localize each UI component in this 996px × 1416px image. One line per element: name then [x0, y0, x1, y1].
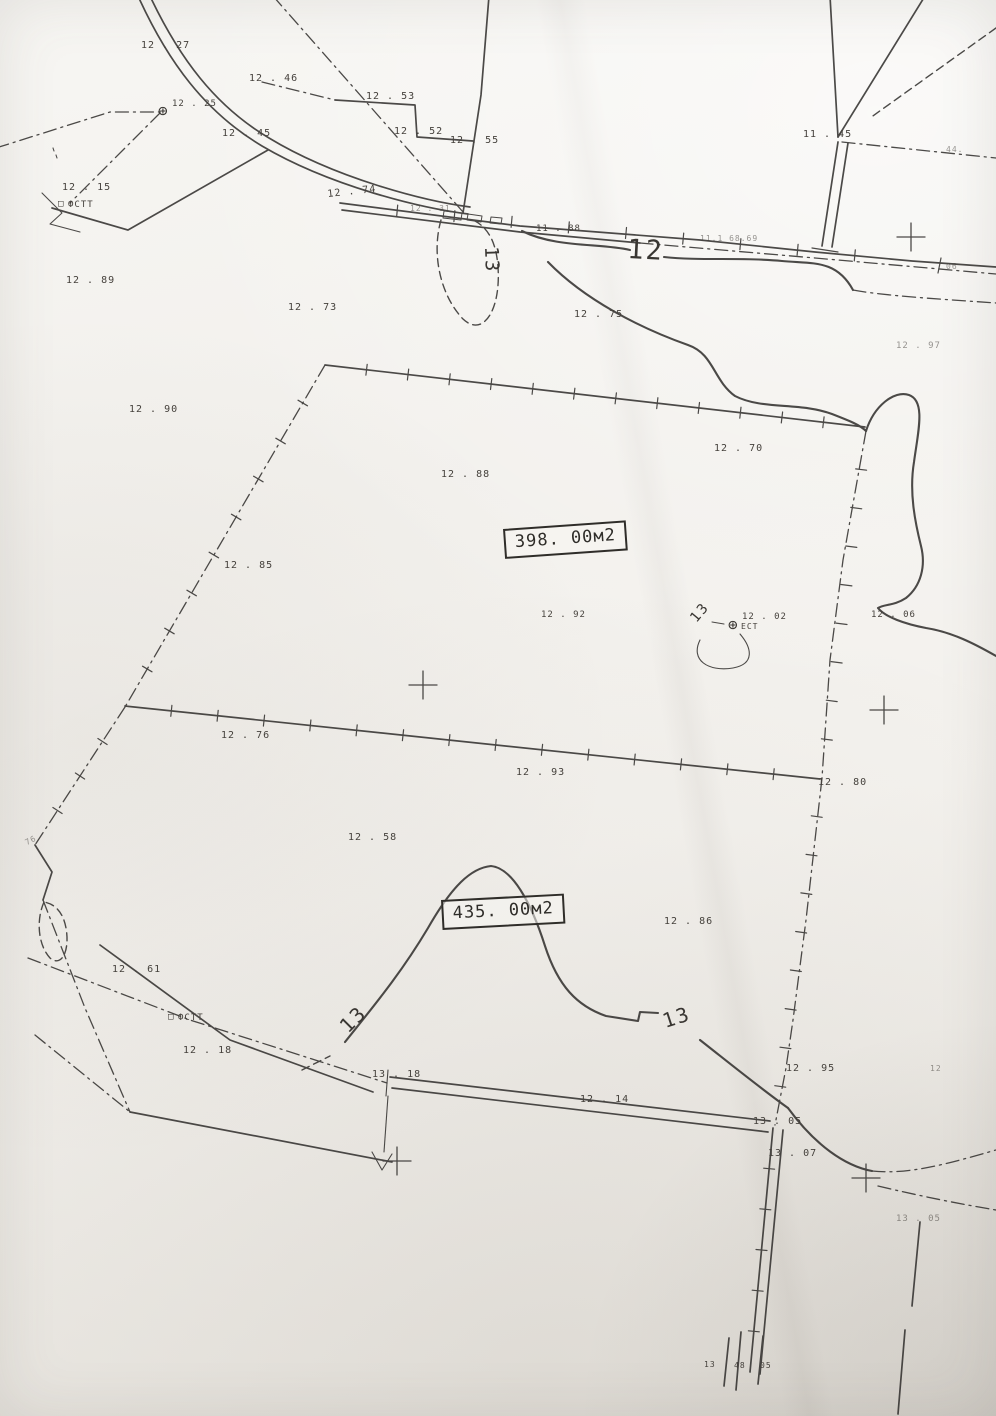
boundary-tick — [356, 725, 357, 736]
spot-elevation-label: 12 . 27 — [141, 41, 190, 51]
spot-elevation-label: 11.1 68.69 — [700, 235, 758, 243]
boundary-tick — [171, 705, 172, 716]
spot-elevation-label: 12 . 85 — [224, 561, 273, 571]
contour-lines — [302, 219, 996, 1210]
generated-marks — [53, 205, 925, 1332]
spot-elevation-label: 12 . 31 — [410, 205, 451, 213]
boundary-tick — [823, 417, 824, 428]
spot-elevation-label: 48 — [734, 1362, 746, 1370]
spot-elevation-label: 12 . 92 — [541, 611, 586, 620]
boundary-tick — [495, 740, 496, 751]
spot-elevation-label: 12 . 61 — [112, 965, 161, 975]
parcel-area-label: 398. 00м2 — [514, 525, 616, 552]
station-marker-icon: ⊕ — [158, 103, 168, 119]
boundary-tick — [680, 759, 681, 770]
boundary-tick — [588, 749, 589, 760]
boundary-tick — [657, 398, 658, 409]
parcel-area-box-2: 435. 00м2 — [441, 894, 566, 930]
contour-label: 13 — [481, 246, 501, 274]
boundary-tick — [491, 379, 492, 390]
spot-elevation-label: 13 . 18 — [372, 1070, 421, 1080]
spot-elevation-label: 12 — [930, 1065, 942, 1073]
boundary-tick — [53, 808, 62, 814]
boundary-tick — [826, 700, 837, 701]
spot-elevation-label: 13 . 07 — [768, 1149, 817, 1159]
cross-mark — [870, 696, 898, 724]
spot-elevation-label: 12 . 76 — [221, 731, 270, 741]
boundary-tick — [254, 476, 264, 482]
spot-elevation-label: 06 — [946, 263, 958, 271]
boundary-tick — [407, 369, 408, 380]
boundary-tick — [187, 590, 197, 596]
cross-mark — [383, 1147, 411, 1175]
spot-elevation-label: 11 . 88 — [536, 225, 581, 234]
boundary-tick — [811, 816, 822, 818]
spot-elevation-label: 12 . 06 — [871, 611, 916, 620]
boundary-tick — [756, 1250, 767, 1251]
survey-point-marker: □ — [168, 1013, 173, 1022]
boundary-tick — [836, 623, 847, 624]
spot-elevation-label: 12 . 53 — [366, 92, 415, 102]
boundary-tick — [231, 514, 241, 520]
spot-elevation-label: 12 . 45 — [222, 129, 271, 139]
spot-elevation-label: 12 . 95 — [786, 1064, 835, 1074]
marker-label: ФСТТ — [68, 201, 94, 210]
boundary-tick — [801, 893, 812, 895]
structure-lines — [0, 0, 996, 252]
spot-elevation-label: 11 . 45 — [803, 130, 852, 140]
boundary-tick — [634, 754, 635, 765]
spot-elevation-label: 12 . 73 — [288, 303, 337, 313]
spot-elevation-label: 12 . 88 — [441, 470, 490, 480]
spot-elevation-label: 12 . 55 — [450, 136, 499, 146]
spot-elevation-label: 12 . 58 — [348, 833, 397, 843]
boundary-tick — [217, 710, 218, 721]
boundary-tick — [276, 438, 286, 444]
boundary-tick — [740, 407, 741, 418]
boundary-tick — [831, 662, 842, 663]
boundary-tick — [748, 1331, 759, 1332]
boundary-tick — [764, 1168, 775, 1169]
boundary-tick — [854, 250, 855, 261]
boundary-tick — [615, 393, 616, 404]
map-linework — [0, 0, 996, 1416]
boundary-tick — [541, 744, 542, 755]
spot-elevation-label: 13 . 05 — [753, 1117, 802, 1127]
cross-mark — [897, 223, 925, 251]
spot-elevation-label: 12 . 25 — [172, 100, 217, 109]
boundary-tick — [760, 1209, 771, 1210]
spot-elevation-label: 12 . 70 — [714, 444, 763, 454]
marker-label: ФСТТ — [178, 1014, 204, 1023]
boundary-tick — [165, 628, 175, 634]
boundary-tick — [263, 715, 264, 726]
marker-label: ЕСТ — [741, 623, 758, 631]
contour-label: 12 — [627, 236, 665, 265]
boundary-tick — [75, 773, 84, 779]
spot-elevation-label: 12 . 86 — [664, 917, 713, 927]
cross-mark — [409, 671, 437, 699]
scanned-survey-plan: 398. 00м2 435. 00м2 12 . 2712 . 4612 . 2… — [0, 0, 996, 1416]
spot-elevation-label: 12 . 15 — [62, 183, 111, 193]
survey-point-marker: □ — [58, 200, 63, 209]
boundary-tick — [806, 854, 817, 855]
spot-elevation-label: 12 . 90 — [129, 405, 178, 415]
spot-elevation-label: 12 . 14 — [580, 1095, 629, 1105]
spot-elevation-label: 13 . 05 — [896, 1215, 941, 1224]
spot-elevation-label: 44. — [946, 146, 963, 154]
boundary-tick — [797, 244, 798, 255]
boundary-tick — [775, 1086, 786, 1088]
boundary-tick — [727, 764, 728, 775]
boundary-lines — [28, 365, 920, 1414]
boundary-tick — [310, 720, 311, 731]
boundary-tick — [143, 666, 153, 672]
boundary-tick — [780, 1047, 791, 1048]
parcel-area-label: 435. 00м2 — [452, 898, 554, 923]
marker-label: 12 . 02 — [742, 613, 787, 622]
cross-mark — [852, 1164, 880, 1192]
boundary-tick — [856, 469, 867, 470]
spot-elevation-label: 12 . 46 — [249, 74, 298, 84]
boundary-tick — [449, 735, 450, 746]
spot-elevation-label: 12 . 80 — [818, 778, 867, 788]
spot-elevation-label: 13 — [704, 1361, 716, 1369]
boundary-tick — [397, 205, 398, 216]
spot-elevation-label: 12 . 93 — [516, 768, 565, 778]
boundary-tick — [532, 383, 533, 394]
boundary-tick — [366, 364, 367, 375]
boundary-tick — [449, 374, 450, 385]
boundary-tick — [298, 400, 308, 406]
boundary-tick — [821, 739, 832, 740]
boundary-tick — [846, 546, 857, 547]
boundary-tick — [683, 233, 684, 244]
boundary-tick — [98, 739, 107, 745]
boundary-tick — [402, 730, 403, 741]
boundary-tick — [626, 228, 627, 239]
spot-elevation-label: 12 . 97 — [896, 342, 941, 351]
spot-elevation-label: 12 . 18 — [183, 1046, 232, 1056]
spot-elevation-label: 12 . 52 — [394, 127, 443, 137]
station-marker-icon: ⊕ — [728, 617, 738, 633]
boundary-tick — [698, 403, 699, 414]
boundary-tick — [574, 388, 575, 399]
spot-elevation-label: 12 . 75 — [574, 310, 623, 320]
spot-elevation-label: 12 . 89 — [66, 276, 115, 286]
boundary-tick — [781, 412, 782, 423]
spot-elevation-label: 05 — [760, 1362, 772, 1370]
boundary-tick — [209, 552, 219, 558]
boundary-tick — [841, 585, 852, 586]
boundary-tick — [752, 1290, 763, 1291]
boundary-tick — [773, 769, 774, 780]
